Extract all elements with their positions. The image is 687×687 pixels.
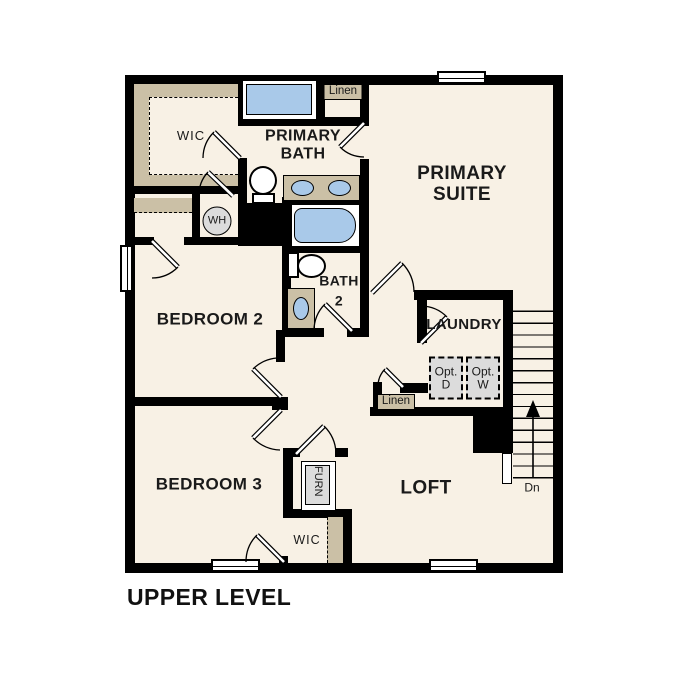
room-label-loft: LOFT — [400, 479, 451, 500]
door-wic-upper — [203, 132, 240, 158]
primary-suite-line2: SUITE — [417, 185, 507, 206]
door-bedroom3 — [253, 410, 281, 450]
page-title: UPPER LEVEL — [127, 584, 291, 611]
bedroom3-text: BEDROOM 3 — [156, 475, 263, 494]
room-label-primary-suite: PRIMARY SUITE — [417, 164, 507, 206]
room-label-wic-upper: WIC — [177, 129, 205, 143]
door-water-heater — [199, 172, 233, 196]
primary-suite-line1: PRIMARY — [417, 164, 507, 185]
door-bedroom2-closet — [152, 241, 178, 278]
laundry-text: LAUNDRY — [426, 316, 502, 333]
stairs-down-label: Dn — [524, 481, 539, 494]
door-linen-mid — [378, 369, 403, 387]
bath2-line2: 2 — [319, 291, 358, 311]
door-primary-bath — [340, 123, 364, 157]
room-label-bedroom3: BEDROOM 3 — [156, 476, 263, 495]
bedroom2-text: BEDROOM 2 — [157, 310, 264, 329]
door-wic-lower — [246, 535, 284, 562]
loft-text: LOFT — [400, 478, 451, 499]
floor-plan: Linen Linen WH Opt. D Opt. W FURN — [0, 0, 687, 687]
wic-lower-text: WIC — [293, 533, 320, 547]
primary-bath-line1: PRIMARY — [265, 127, 341, 145]
bath2-line1: BATH — [319, 271, 358, 291]
room-label-laundry: LAUNDRY — [426, 317, 502, 334]
primary-bath-line2: BATH — [265, 145, 341, 163]
dn-text: Dn — [524, 480, 539, 494]
title-text: UPPER LEVEL — [127, 584, 291, 610]
wic-upper-text: WIC — [177, 128, 205, 143]
door-furnace — [296, 426, 336, 454]
door-bedroom2 — [253, 358, 281, 397]
room-label-bedroom2: BEDROOM 2 — [157, 311, 264, 330]
door-primary-suite — [372, 263, 414, 293]
doors-overlay — [0, 0, 687, 687]
room-label-primary-bath: PRIMARY BATH — [265, 127, 341, 162]
room-label-bath2: BATH 2 — [319, 271, 358, 312]
stairs-up-arrow — [526, 400, 540, 477]
room-label-wic-lower: WIC — [293, 534, 320, 548]
